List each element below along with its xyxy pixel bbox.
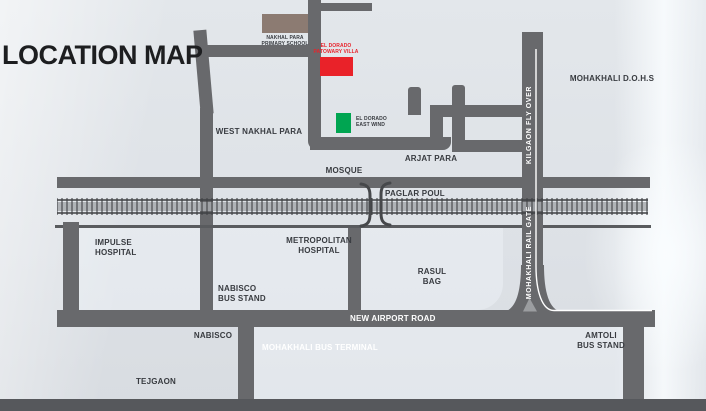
villa-label: EL DORADO PATOWARY VILLA (313, 43, 358, 56)
area-metropolitan-hospital: METROPOLITAN HOSPITAL (286, 236, 352, 255)
road-label-new-airport-road: NEW AIRPORT ROAD (350, 314, 436, 324)
road-label-kilgaon-fly-over: KILGAON FLY OVER (526, 86, 533, 164)
villa-box (320, 57, 353, 76)
school-label: NAKHAL PARA PRIMARY SCHOOL (262, 35, 309, 48)
eastwind-label: EL DORADO EAST WIND (356, 116, 387, 129)
area-rasul-bag: RASUL BAG (418, 267, 447, 286)
flyover-white-line (536, 49, 652, 311)
area-mohakhali-dohs: MOHAKHALI D.O.H.S (570, 74, 654, 84)
area-arjat-para: ARJAT PARA (405, 154, 457, 164)
area-mosque: MOSQUE (326, 166, 363, 176)
area-paglar-poul: PAGLAR POUL (385, 189, 445, 199)
area-tejgaon: TEJGAON (136, 377, 176, 387)
school-box (262, 14, 308, 33)
area-amtoli-bus-stand: AMTOLI BUS STAND (577, 331, 625, 350)
area-nabisco-bus-stand: NABISCO BUS STAND (218, 284, 266, 303)
page-title: LOCATION MAP (2, 40, 202, 71)
area-impulse-hospital: IMPULSE HOSPITAL (95, 238, 136, 257)
area-west-nakhal-para: WEST NAKHAL PARA (216, 127, 302, 137)
location-map: LOCATION MAP NAKHAL PARA PRIMARY SCHOOL … (0, 0, 706, 411)
railway-sleepers (57, 198, 648, 215)
eastwind-box (336, 113, 351, 133)
area-nabisco: NABISCO (194, 331, 232, 341)
road-label-mohakhali-rail-gate: MOHAKHALI RAIL GATE (526, 206, 533, 299)
road-label-mohakhali-bus-terminal: MOHAKHALI BUS TERMINAL (262, 343, 378, 353)
